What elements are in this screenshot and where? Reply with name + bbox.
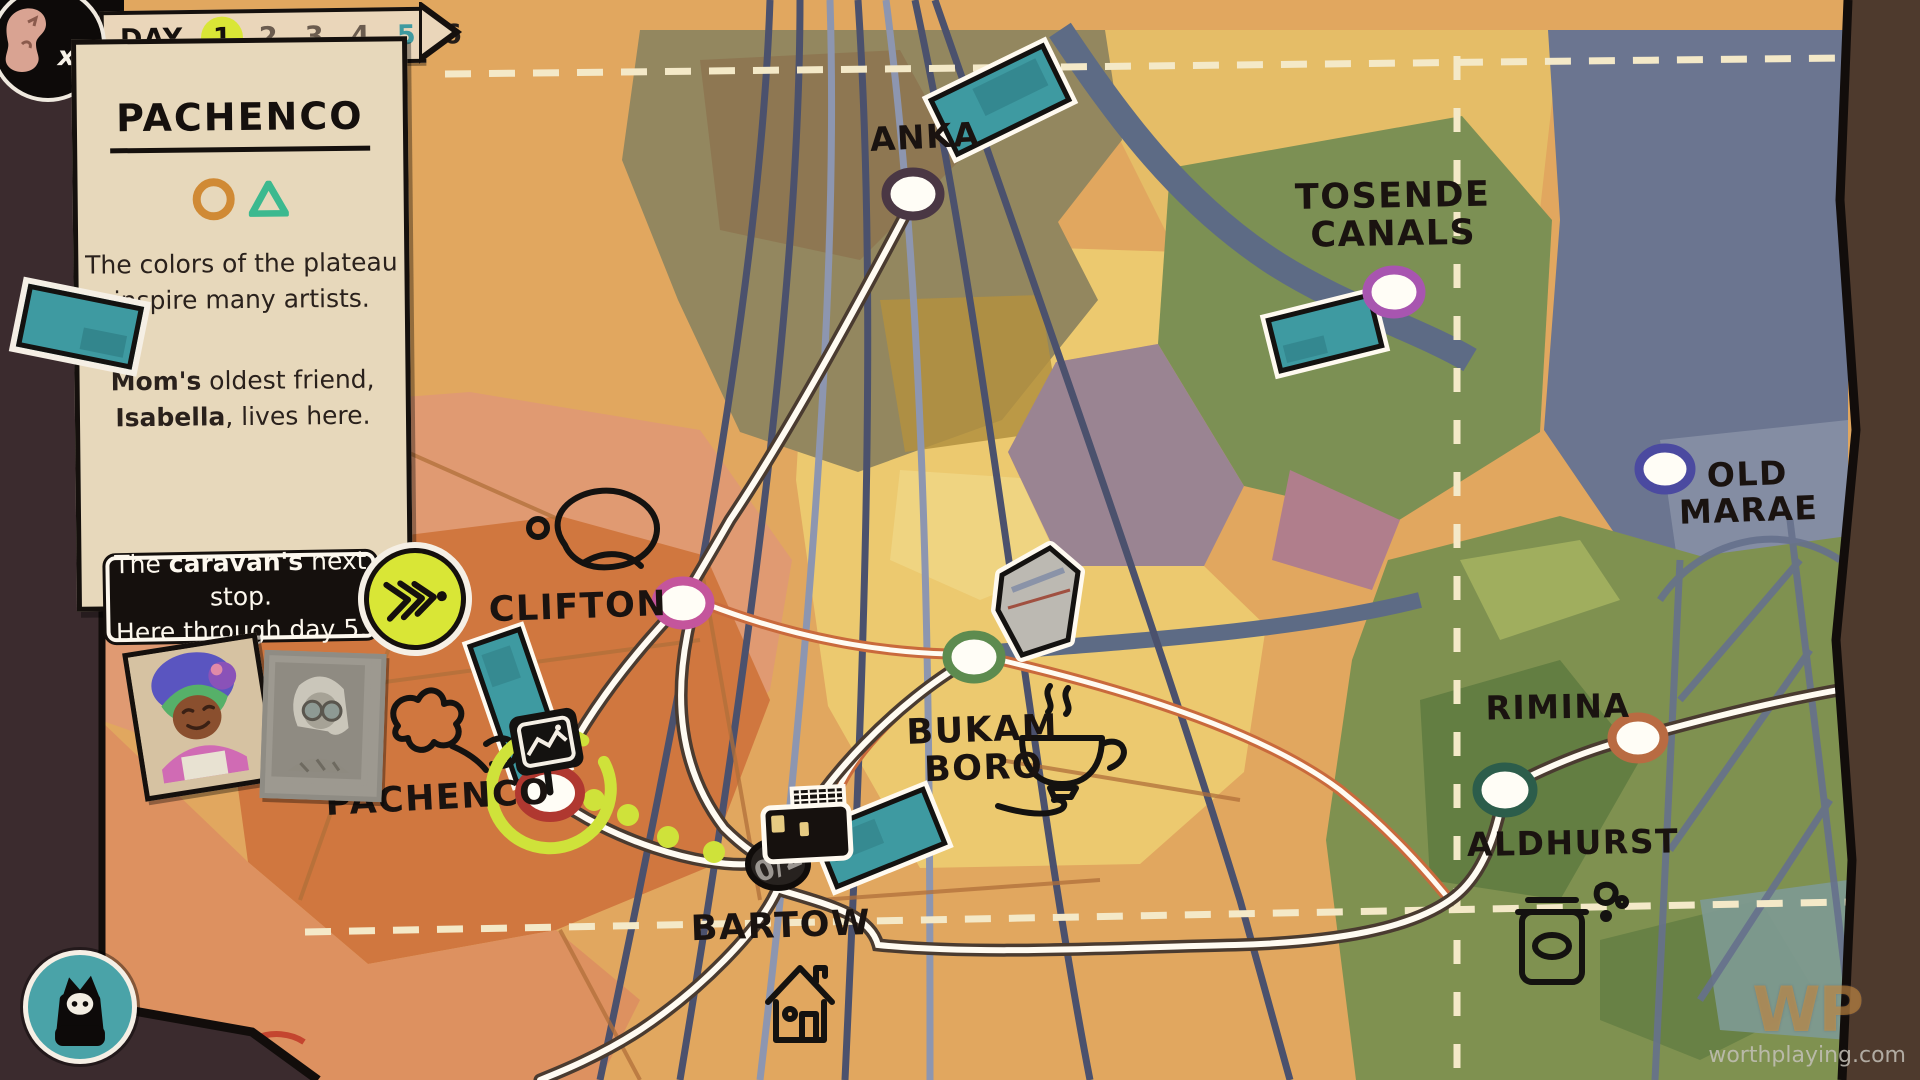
game-map-screen: 0/2 bbox=[0, 0, 1920, 1080]
town-node-anka[interactable] bbox=[886, 172, 940, 216]
trait-icons bbox=[77, 176, 403, 221]
map-scrap-icon[interactable] bbox=[998, 548, 1078, 655]
watermark-site: worthplaying.com bbox=[1708, 1043, 1906, 1068]
mitten-icon bbox=[0, 4, 64, 74]
town-label-tosende-canals: TOSENDE CANALS bbox=[1295, 177, 1492, 256]
character-portrait-grayscale bbox=[259, 650, 386, 802]
watermark-logo: WP bbox=[1708, 979, 1906, 1041]
town-node-bukam-boro[interactable] bbox=[947, 635, 1001, 679]
town-label-anka: ANKA bbox=[869, 116, 981, 157]
day-tracker-arrow bbox=[419, 2, 465, 64]
town-label-clifton: CLIFTON bbox=[488, 586, 668, 630]
panel-title: PACHENCO bbox=[110, 94, 370, 154]
town-label-rimina: RIMINA bbox=[1485, 688, 1631, 726]
town-label-bartow: BARTOW bbox=[690, 905, 872, 949]
portrait-isabella-friend bbox=[128, 640, 263, 787]
cat-character-icon bbox=[41, 967, 119, 1047]
town-label-aldhurst: ALDHURST bbox=[1467, 823, 1680, 862]
town-label-bukam-boro: BUKAM BORO bbox=[906, 710, 1060, 791]
fast-forward-feather-icon bbox=[380, 571, 451, 628]
character-portrait-color bbox=[122, 632, 280, 801]
portrait-grayscale-person bbox=[265, 655, 371, 786]
trait-circle-icon bbox=[192, 178, 234, 220]
watermark: WP worthplaying.com bbox=[1708, 979, 1906, 1068]
town-label-old-marae: OLD MARAE bbox=[1677, 454, 1819, 530]
town-node-aldhurst[interactable] bbox=[1477, 767, 1533, 813]
panel-note: Mom's oldest friend, Isabella, lives her… bbox=[79, 361, 406, 437]
cat-profile-button[interactable] bbox=[23, 950, 137, 1064]
trait-triangle-icon bbox=[249, 181, 289, 217]
next-stop-tooltip: The caravan's next stop. Here through da… bbox=[105, 552, 376, 643]
town-node-tosende-canals[interactable] bbox=[1367, 270, 1421, 314]
town-info-panel: PACHENCO The colors of the plateau inspi… bbox=[71, 36, 413, 611]
